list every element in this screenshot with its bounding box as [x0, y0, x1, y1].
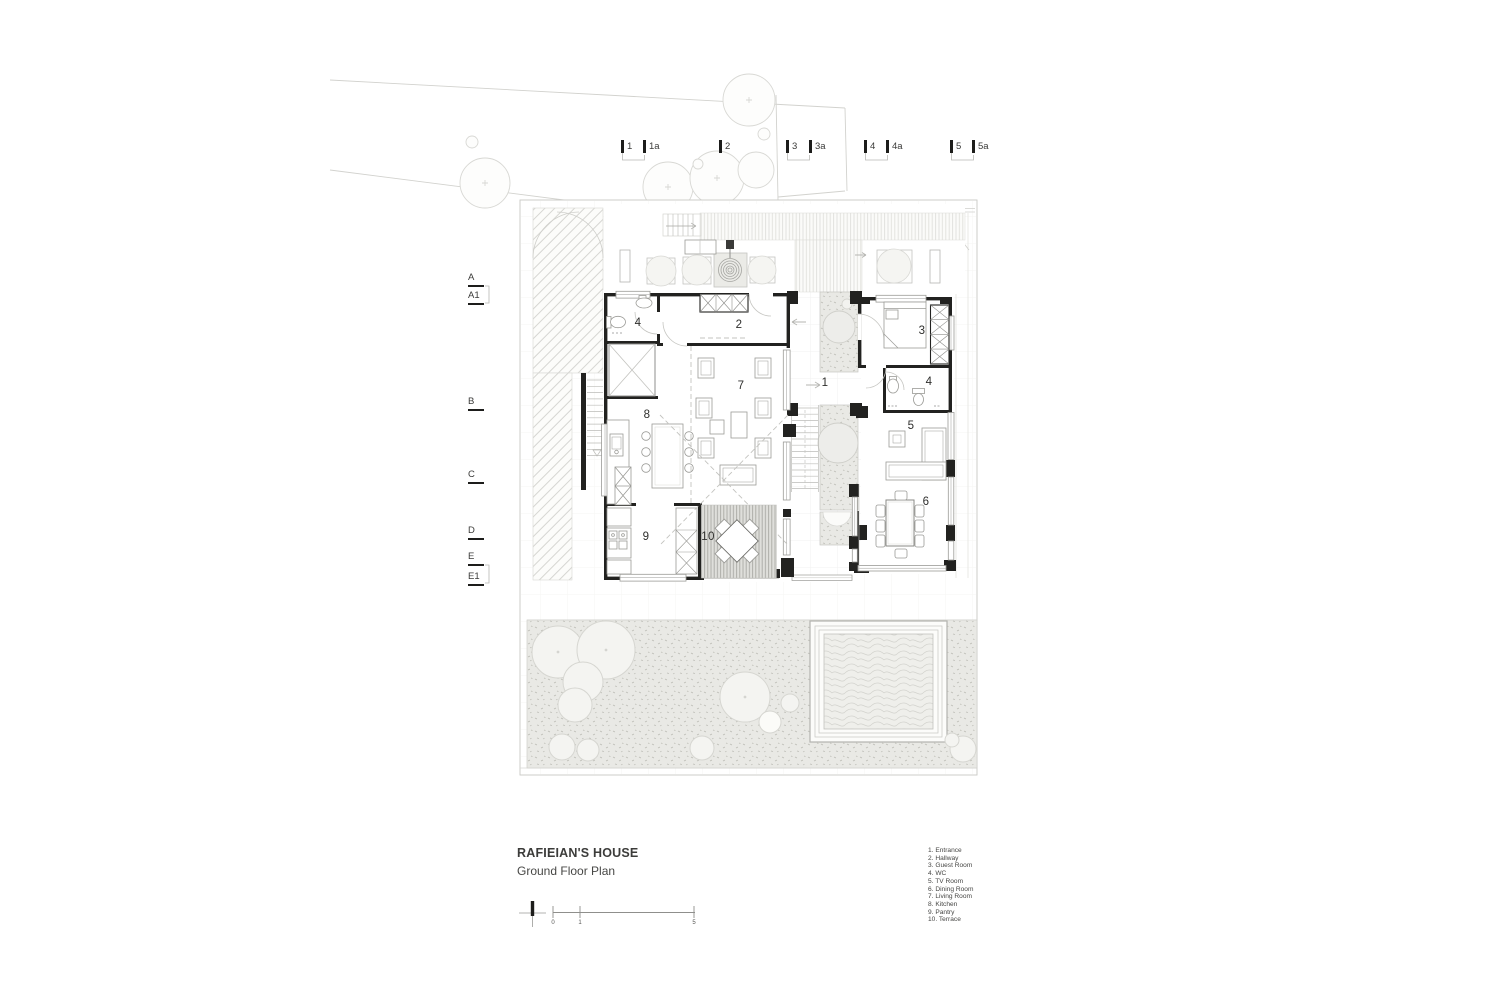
- grid-tick: [468, 303, 484, 305]
- legend-item: 4. WC: [928, 870, 973, 878]
- grid-axis-label: 5: [956, 140, 961, 153]
- room-label-living-room: 7: [738, 380, 745, 392]
- grid-axis-label: E: [468, 551, 474, 562]
- guest-wardrobe: [931, 305, 950, 364]
- scale-tick-5: 5: [692, 920, 695, 926]
- grid-tick: [886, 140, 889, 153]
- floor-plan-sheet: 1 1a 2 3 3a 4 4a 5 5a A A1 B C D E E1 1 …: [0, 0, 1501, 1000]
- grid-axis-left-B: B: [468, 397, 484, 411]
- grid-axis-left-E1: E1: [468, 572, 484, 586]
- counter: [685, 240, 716, 254]
- room-label-kitchen: 8: [644, 409, 651, 421]
- scale-tick-0: 0: [551, 920, 554, 926]
- room-label-hallway: 2: [736, 319, 743, 331]
- legend-item: 7. Living Room: [928, 893, 973, 901]
- bench: [620, 250, 630, 282]
- grid-tick: [468, 409, 484, 411]
- grid-tick: [972, 140, 975, 153]
- grid-tick: [468, 584, 484, 586]
- grid-axis-label: 1: [627, 140, 632, 153]
- room-label-terrace: 10: [701, 531, 714, 543]
- grid-axis-left-A1: A1: [468, 291, 484, 305]
- room-label-tv-room: 5: [908, 420, 915, 432]
- garden-lawn: [527, 620, 977, 768]
- room-legend: 1. Entrance 2. Hallway 3. Guest Room 4. …: [928, 847, 973, 924]
- grid-axis-label: 4: [870, 140, 875, 153]
- grid-axis-label: C: [468, 469, 475, 480]
- grid-axis-label: B: [468, 396, 474, 407]
- grid-axis-label: 3: [792, 140, 797, 153]
- project-title: RAFIEIAN'S HOUSE: [517, 846, 638, 860]
- grid-axis-top-5: 5: [950, 140, 961, 153]
- grid-tick: [621, 140, 624, 153]
- grid-tick: [786, 140, 789, 153]
- grid-axis-label: 4a: [892, 140, 903, 153]
- plan-drawing: [0, 0, 1501, 1000]
- grid-tick: [468, 564, 484, 566]
- grid-tick: [950, 140, 953, 153]
- scale-tick-1: 1: [578, 920, 581, 926]
- scale-bar: [519, 901, 695, 927]
- courtyard-planters: [646, 255, 776, 286]
- room-label-entrance: 1: [822, 377, 829, 389]
- room-label-wc-right: 4: [926, 376, 933, 388]
- grid-tick: [468, 285, 484, 287]
- hall-wardrobe: [700, 294, 748, 312]
- legend-item: 6. Dining Room: [928, 886, 973, 894]
- grid-axis-label: D: [468, 525, 475, 536]
- grid-axis-label: 2: [725, 140, 730, 153]
- legend-item: 10. Terrace: [928, 916, 973, 924]
- grid-tick: [468, 482, 484, 484]
- room-label-pantry: 9: [643, 531, 650, 543]
- legend-item: 1. Entrance: [928, 847, 973, 855]
- grid-axis-left-E: E: [468, 552, 484, 566]
- grid-axis-label: 3a: [815, 140, 826, 153]
- pool: [810, 621, 947, 742]
- grid-tick: [864, 140, 867, 153]
- grid-axis-left-A: A: [468, 273, 484, 287]
- grid-axis-top-2: 2: [719, 140, 730, 153]
- legend-item: 5. TV Room: [928, 878, 973, 886]
- grid-axis-label: E1: [468, 571, 480, 582]
- room-label-wc-left: 4: [635, 317, 642, 329]
- grid-tick: [719, 140, 722, 153]
- grid-axis-label: A: [468, 272, 474, 283]
- grid-axis-top-3a: 3a: [809, 140, 826, 153]
- grid-axis-top-4a: 4a: [886, 140, 903, 153]
- grid-axis-top-4: 4: [864, 140, 875, 153]
- grid-axis-label: A1: [468, 290, 480, 301]
- grid-axis-left-D: D: [468, 526, 484, 540]
- grid-axis-label: 1a: [649, 140, 660, 153]
- room-label-guest-room: 3: [919, 325, 926, 337]
- grid-tick: [468, 538, 484, 540]
- grid-axis-top-3: 3: [786, 140, 797, 153]
- grid-tick: [643, 140, 646, 153]
- grid-tick: [809, 140, 812, 153]
- grid-axis-left-C: C: [468, 470, 484, 484]
- legend-item: 2. Hallway: [928, 855, 973, 863]
- terrace-table: [715, 519, 759, 563]
- drawing-title: Ground Floor Plan: [517, 864, 615, 878]
- elevator-shaft: [609, 344, 655, 396]
- grid-axis-top-1: 1: [621, 140, 632, 153]
- legend-item: 3. Guest Room: [928, 862, 973, 870]
- grid-axis-top-1a: 1a: [643, 140, 660, 153]
- grid-axis-label: 5a: [978, 140, 989, 153]
- legend-item: 9. Pantry: [928, 909, 973, 917]
- right-courtyard: [877, 249, 940, 283]
- grid-axis-top-5a: 5a: [972, 140, 989, 153]
- legend-item: 8. Kitchen: [928, 901, 973, 909]
- room-label-dining-room: 6: [923, 496, 930, 508]
